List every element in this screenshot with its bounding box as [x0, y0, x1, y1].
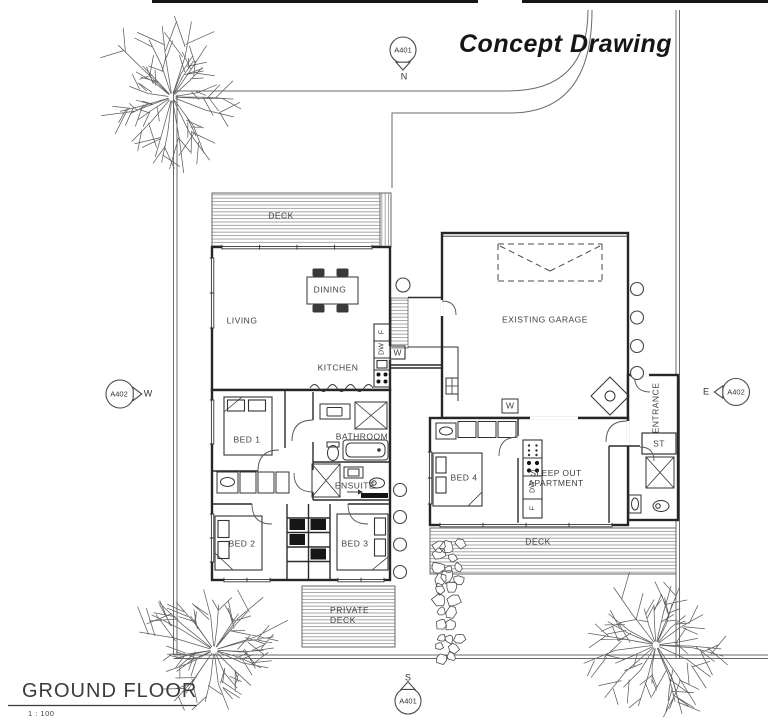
room-label-dining: DINING [314, 286, 347, 295]
concept-drawing-page: Concept Drawing DECK LIVING DINING KITCH… [0, 0, 768, 727]
room-label-kitchen: KITCHEN [318, 364, 359, 373]
appliance-label-sleepout-fridge: F [528, 506, 537, 510]
section-marker-north-ref: A401 [394, 46, 412, 55]
appliance-label-dishwasher: DW [377, 343, 386, 355]
room-label-deck-north: DECK [268, 212, 294, 221]
appliance-label-fridge: F [377, 330, 386, 334]
compass-east-label: E [703, 388, 709, 397]
section-marker-east-ref: A402 [727, 388, 745, 397]
room-label-bed2: BED 2 [228, 540, 255, 549]
appliance-label-garage-washer: W [506, 402, 514, 411]
compass-north-label: N [401, 73, 408, 82]
room-label-living: LIVING [227, 317, 258, 326]
section-marker-west-ref: A402 [110, 390, 128, 399]
appliance-label-washer: W [393, 348, 401, 357]
compass-west-label: W [144, 390, 153, 399]
view-title: GROUND FLOOR [22, 680, 197, 703]
room-label-bed3: BED 3 [341, 540, 368, 549]
sleep-out-line1: SLEEP OUT [528, 468, 583, 478]
section-marker-south-ref: A401 [399, 697, 417, 706]
floor-plan-graphics [0, 0, 768, 727]
room-label-bathroom: BATHROOM [336, 433, 388, 442]
room-label-ensuite: ENSUITE [335, 482, 375, 491]
appliance-label-sleepout-dishwasher: DW [528, 481, 537, 493]
room-label-bed1: BED 1 [233, 436, 260, 445]
room-label-entrance: ENTRANCE [652, 383, 661, 434]
room-label-storage: ST [653, 440, 665, 449]
compass-south-label: S [405, 674, 411, 683]
view-scale: 1 : 100 [28, 709, 54, 718]
drawing-title: Concept Drawing [459, 30, 672, 59]
room-label-private-deck: PRIVATE DECK [330, 606, 369, 625]
room-label-bed4: BED 4 [450, 474, 477, 483]
landscape-sketch [101, 16, 728, 717]
room-label-deck-south: DECK [525, 538, 551, 547]
private-deck-line2: DECK [330, 616, 369, 626]
room-label-existing-garage: EXISTING GARAGE [502, 316, 588, 325]
